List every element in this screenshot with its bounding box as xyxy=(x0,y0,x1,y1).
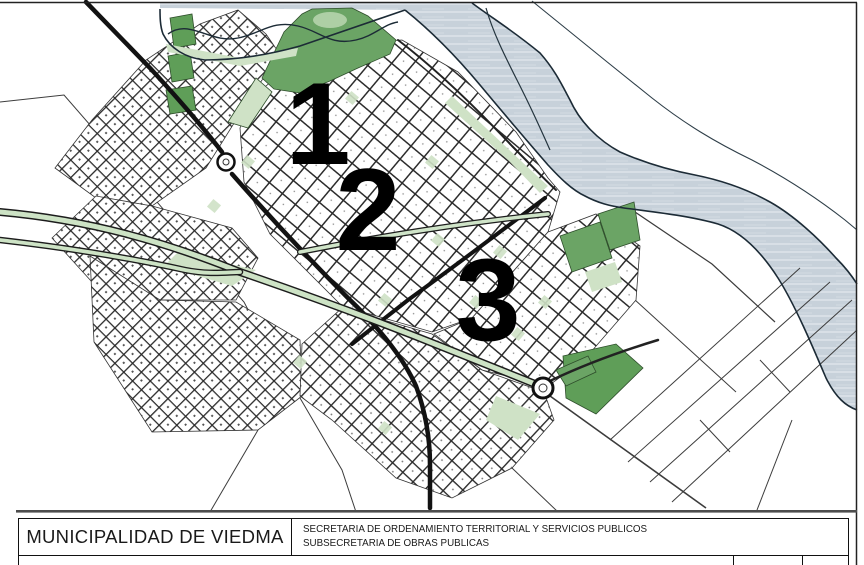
title-block-empty-cell-1 xyxy=(19,556,734,565)
zone-label-2: 2 xyxy=(335,144,400,275)
title-block-empty-cell-3 xyxy=(803,556,848,565)
park-lawn xyxy=(313,12,347,28)
frame-bottom xyxy=(16,510,857,513)
city-plan-page: 1 2 3 MUNICIPALIDAD DE VIEDMA SECRETARIA… xyxy=(0,0,864,565)
roundabout-south xyxy=(533,378,553,398)
zone-label-3: 3 xyxy=(455,234,520,365)
roundabout-northwest xyxy=(218,154,235,171)
secretary-line-2: SUBSECRETARIA DE OBRAS PUBLICAS xyxy=(303,537,848,551)
title-block-row-2 xyxy=(19,556,848,565)
title-block: MUNICIPALIDAD DE VIEDMA SECRETARIA DE OR… xyxy=(18,518,849,565)
title-block-row-1: MUNICIPALIDAD DE VIEDMA SECRETARIA DE OR… xyxy=(19,519,848,556)
secretary-cell: SECRETARIA DE ORDENAMIENTO TERRITORIAL Y… xyxy=(292,519,848,555)
title-block-empty-cell-2 xyxy=(734,556,803,565)
secretary-line-1: SECRETARIA DE ORDENAMIENTO TERRITORIAL Y… xyxy=(303,523,848,537)
municipality-name: MUNICIPALIDAD DE VIEDMA xyxy=(19,519,292,555)
viedma-map: 1 2 3 xyxy=(0,0,864,565)
